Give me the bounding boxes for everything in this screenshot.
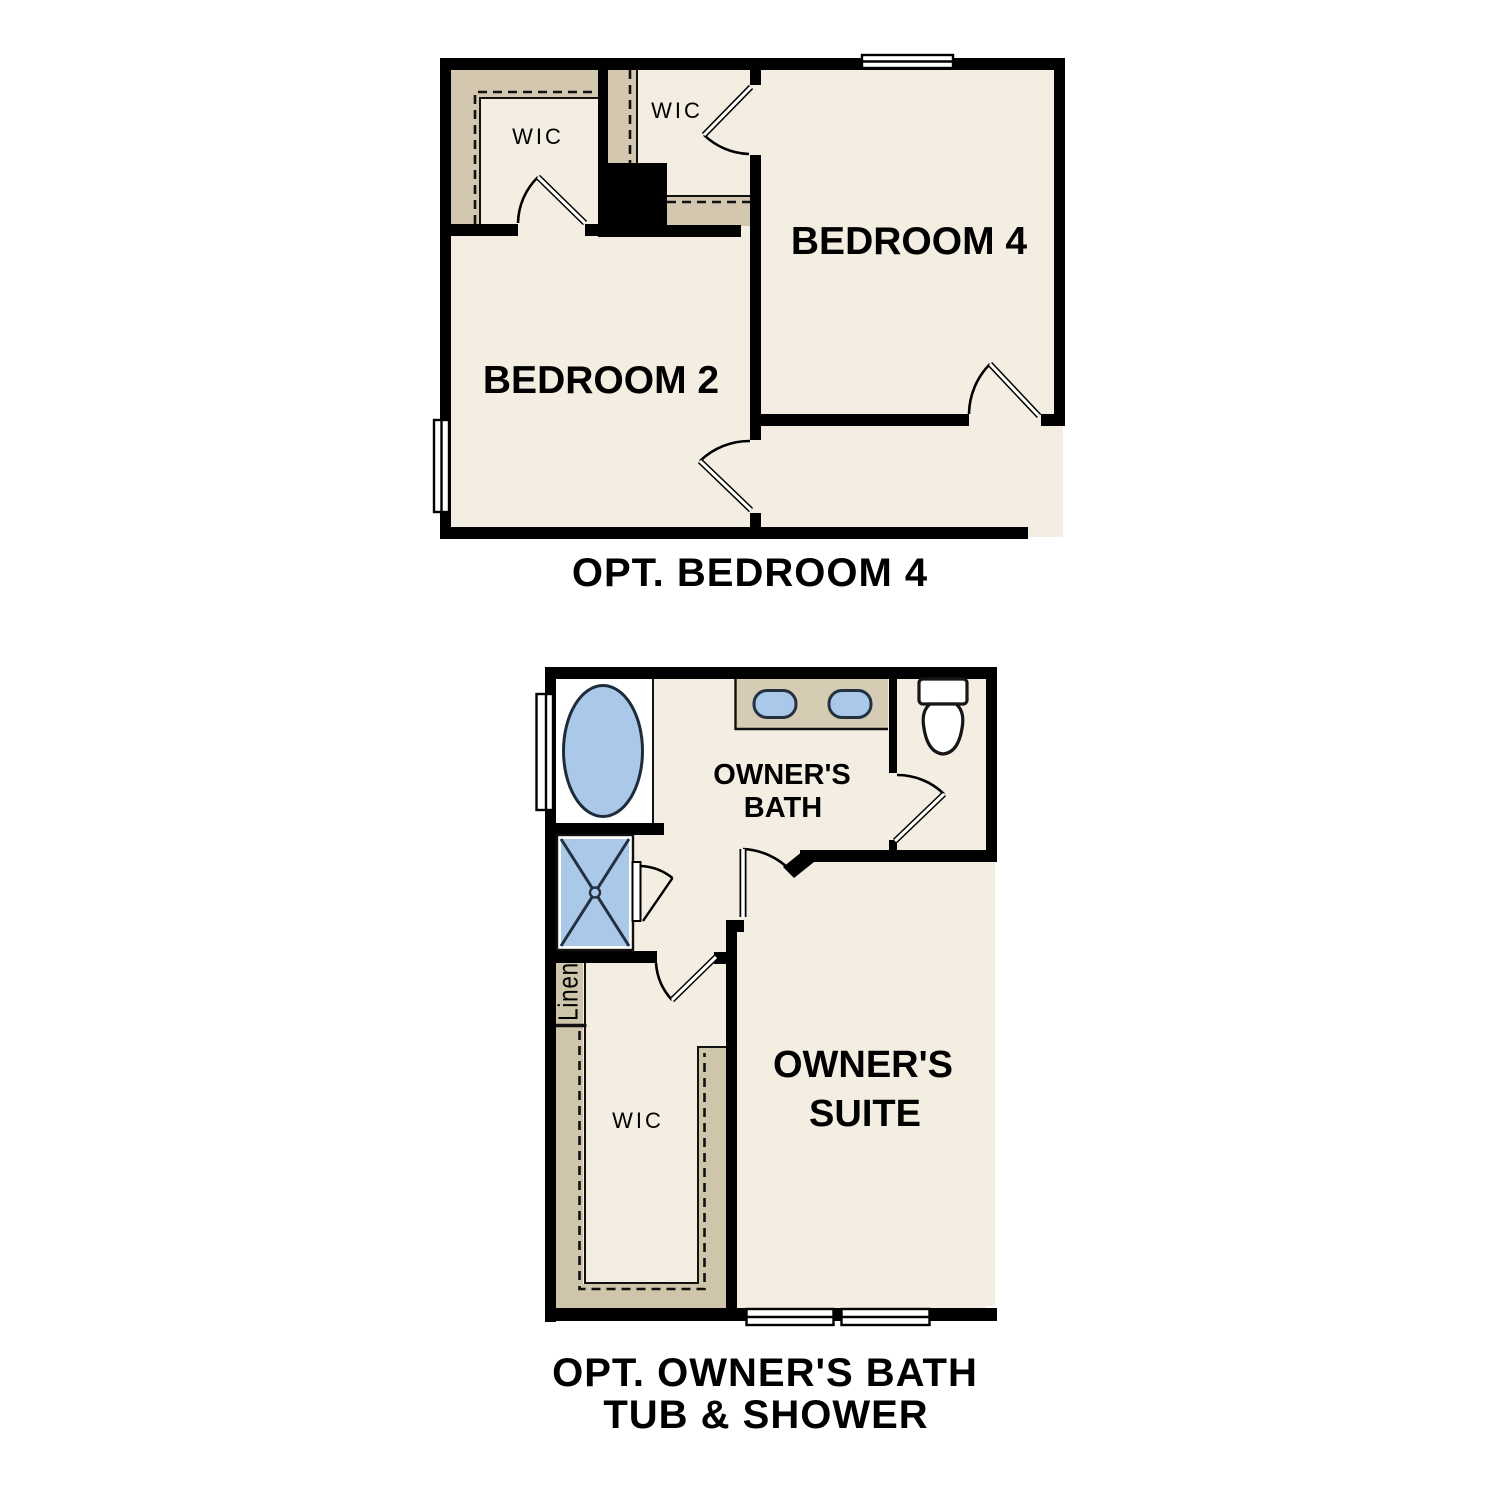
svg-text:BEDROOM 4: BEDROOM 4 bbox=[791, 220, 1028, 263]
svg-text:OPT. BEDROOM 4: OPT. BEDROOM 4 bbox=[572, 551, 928, 595]
svg-text:BEDROOM 2: BEDROOM 2 bbox=[483, 359, 719, 402]
svg-text:WIC: WIC bbox=[512, 124, 564, 149]
svg-text:OPT. OWNER'S BATH: OPT. OWNER'S BATH bbox=[552, 1351, 978, 1395]
svg-text:TUB & SHOWER: TUB & SHOWER bbox=[603, 1393, 928, 1437]
svg-text:WIC: WIC bbox=[612, 1108, 664, 1133]
svg-text:SUITE: SUITE bbox=[809, 1093, 921, 1135]
svg-text:OWNER'S: OWNER'S bbox=[713, 759, 850, 791]
svg-text:BATH: BATH bbox=[744, 792, 822, 824]
svg-text:Linen: Linen bbox=[553, 962, 584, 1021]
svg-text:WIC: WIC bbox=[651, 98, 703, 123]
svg-text:OWNER'S: OWNER'S bbox=[773, 1044, 953, 1086]
